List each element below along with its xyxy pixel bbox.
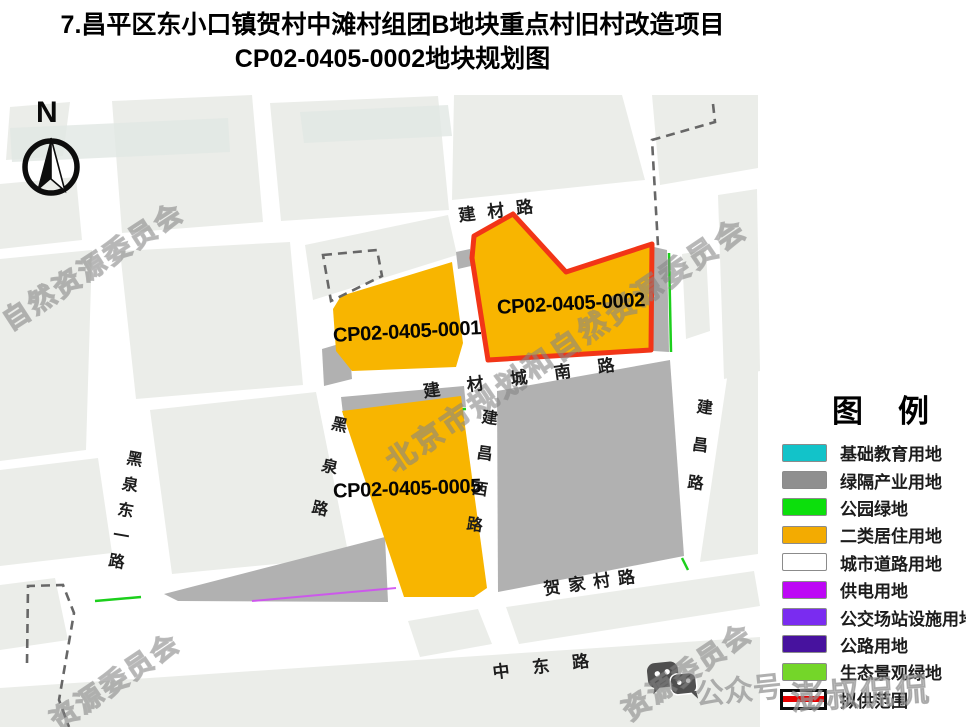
title-line-2: CP02-0405-0002地块规划图	[0, 42, 785, 76]
legend-item-label: 公园绿地	[840, 495, 908, 520]
title-line-1: 7.昌平区东小口镇贺村中滩村组团B地块重点村旧村改造项目	[0, 8, 785, 42]
power-swatch	[782, 581, 827, 599]
legend-item-industry: 绿隔产业用地	[770, 466, 966, 493]
legend-item-label: 公路用地	[840, 632, 908, 657]
legend-item-label: 公交场站设施用地	[840, 605, 966, 630]
legend-panel: 图 例 基础教育用地 绿隔产业用地 公园绿地 二类居住用地 城市道路用地	[770, 386, 966, 713]
legend-item-education: 基础教育用地	[770, 439, 966, 466]
planning-map-page: 自然资源委员会 北京市规划和自然资源委员会 资源委员会 资源委员会 澎叔侃侃 公…	[0, 0, 966, 727]
industry-sliver-hat	[456, 249, 471, 269]
legend-item-label: 城市道路用地	[840, 550, 942, 575]
park-green-swatch	[782, 498, 827, 516]
legend-item-road: 城市道路用地	[770, 549, 966, 576]
legend-item-residential: 二类居住用地	[770, 521, 966, 548]
legend-item-label: 二类居住用地	[840, 522, 942, 547]
industry-swatch	[782, 471, 827, 489]
legend-title: 图 例	[832, 386, 966, 431]
education-swatch	[782, 444, 827, 462]
urban-road-swatch	[782, 553, 827, 571]
highway-swatch	[782, 635, 827, 653]
legend-item-label: 绿隔产业用地	[840, 468, 942, 493]
legend-item-transit: 公交场站设施用地	[770, 603, 966, 630]
transit-station-swatch	[782, 608, 827, 626]
legend-item-highway: 公路用地	[770, 631, 966, 658]
watermark-pengshu: 澎叔侃侃	[789, 662, 932, 720]
page-title: 7.昌平区东小口镇贺村中滩村组团B地块重点村旧村改造项目 CP02-0405-0…	[0, 8, 785, 76]
residential-swatch	[782, 526, 827, 544]
north-label: N	[36, 96, 58, 130]
legend-item-power: 供电用地	[770, 576, 966, 603]
legend-item-park: 公园绿地	[770, 494, 966, 521]
legend-item-label: 供电用地	[840, 577, 908, 602]
legend-item-label: 基础教育用地	[840, 440, 942, 465]
